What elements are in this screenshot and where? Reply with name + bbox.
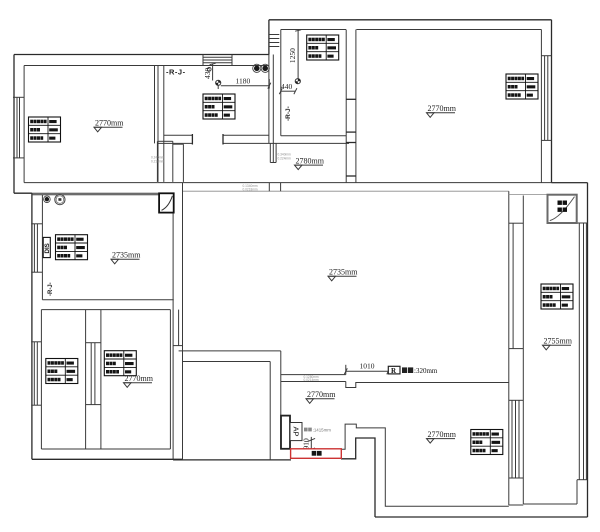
svg-text::1415mm: :1415mm: [313, 427, 332, 432]
svg-text:-R-J-: -R-J-: [166, 68, 186, 77]
svg-text:0.0214mm: 0.0214mm: [304, 378, 319, 382]
svg-text:440: 440: [281, 82, 293, 91]
svg-text:1010: 1010: [360, 361, 375, 370]
svg-text:2735mm: 2735mm: [329, 268, 358, 277]
svg-text:430: 430: [203, 68, 212, 80]
svg-text:2780mm: 2780mm: [296, 156, 325, 165]
svg-text:0.218mm: 0.218mm: [151, 160, 165, 164]
svg-text:2770mm: 2770mm: [307, 390, 336, 399]
svg-text:AP: AP: [291, 426, 300, 436]
svg-text:2770mm: 2770mm: [95, 119, 124, 128]
svg-text:0.224mm: 0.224mm: [278, 157, 292, 161]
svg-text:0.0218mm: 0.0218mm: [243, 188, 258, 192]
svg-text::320mm: :320mm: [414, 367, 438, 375]
svg-text:-R-J-: -R-J-: [285, 106, 292, 121]
svg-text:1250: 1250: [288, 48, 297, 63]
svg-text:DIS: DIS: [44, 243, 51, 253]
svg-text:-R-J-: -R-J-: [48, 282, 54, 296]
svg-text:2770mm: 2770mm: [428, 430, 457, 439]
svg-text:2770mm: 2770mm: [428, 104, 457, 113]
svg-text:2735mm: 2735mm: [112, 251, 141, 260]
svg-text:1180: 1180: [236, 77, 251, 86]
svg-text:910: 910: [301, 438, 310, 450]
svg-text:2755mm: 2755mm: [544, 337, 573, 346]
